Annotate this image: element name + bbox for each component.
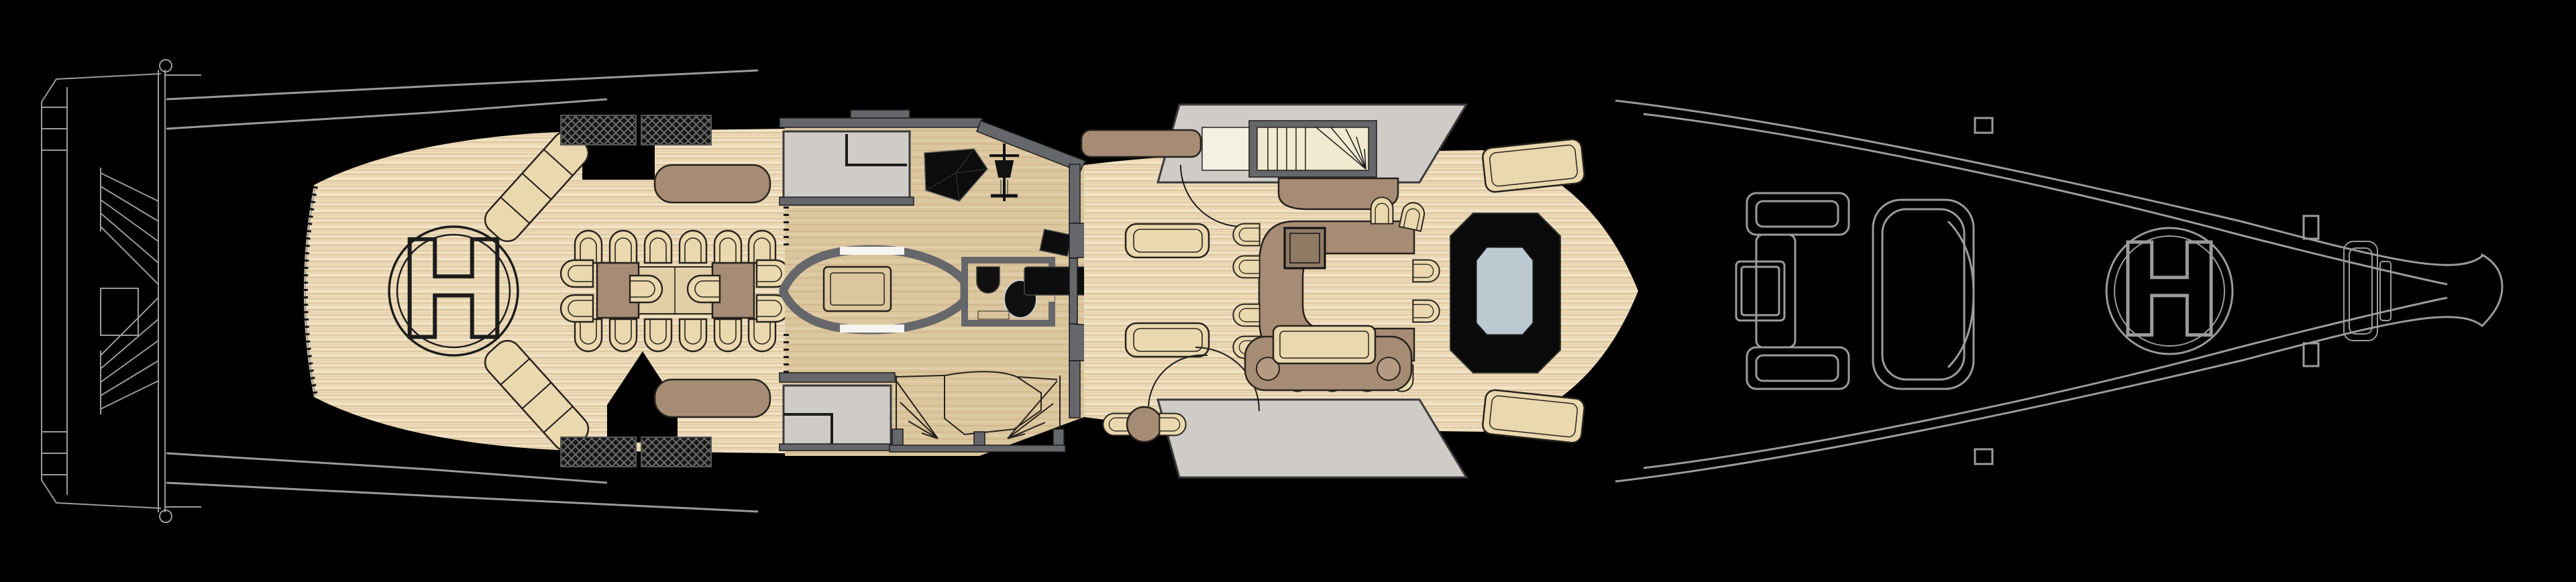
bar-stool [1413, 260, 1439, 282]
dining-chair [561, 260, 593, 287]
pod-doorway-bottom [840, 325, 904, 333]
console-aft-top [1081, 130, 1201, 157]
dining-chair [714, 319, 741, 351]
sun-pad-top [1482, 138, 1585, 192]
bar-grill [1285, 228, 1325, 268]
sideboard-bottom [655, 380, 770, 417]
fore-helipad-h: H [2116, 217, 2222, 365]
salon-interior [780, 110, 1131, 456]
dining-chair [610, 319, 637, 351]
bar-stool [1371, 197, 1393, 223]
elevator-pod [784, 247, 965, 333]
pool [1450, 213, 1560, 373]
bar-stool [1233, 304, 1259, 327]
bar-stool [1233, 256, 1259, 278]
sun-pad-bottom [1482, 389, 1585, 443]
bistro-chair [1159, 414, 1185, 436]
salon-top-wall-jog [851, 110, 910, 118]
aft-helipad-h: H [397, 213, 509, 369]
dining-chair [630, 276, 662, 302]
bar-stool [1233, 224, 1259, 246]
bar-stool [1413, 300, 1439, 323]
bistro-table [1127, 407, 1162, 442]
aft-deck: H [304, 115, 789, 467]
dining-chair [749, 231, 775, 263]
dining-chair [688, 276, 720, 302]
stair-landing [1202, 127, 1249, 170]
wing-structure-bottom [1158, 400, 1466, 477]
dining-chair [575, 319, 602, 351]
dining-chair [561, 295, 593, 322]
sideboard-top [655, 165, 770, 202]
bistro-chair [1103, 414, 1129, 436]
pod-doorway-top [840, 247, 904, 255]
dining-chair [749, 319, 775, 351]
dining-chair [680, 231, 706, 263]
salon-top-wall [780, 118, 982, 127]
dining-chair [645, 231, 672, 263]
dining-chair [610, 231, 637, 263]
pantry-room [780, 131, 914, 205]
yacht-deck-plan: H [0, 0, 2576, 582]
mid-deck [1081, 105, 1638, 477]
elevator-car [824, 267, 891, 311]
toilet-icon [977, 267, 1000, 293]
dining-chair [680, 319, 706, 351]
wing-staircase [1257, 127, 1368, 170]
dining-chair [714, 231, 741, 263]
bath-mat [978, 311, 1009, 319]
dining-chair [645, 319, 672, 351]
deck-plan-canvas: H [0, 0, 2576, 582]
pool-water [1476, 247, 1534, 335]
fore-helipad: H [2106, 217, 2233, 365]
dining-chair [575, 231, 602, 263]
